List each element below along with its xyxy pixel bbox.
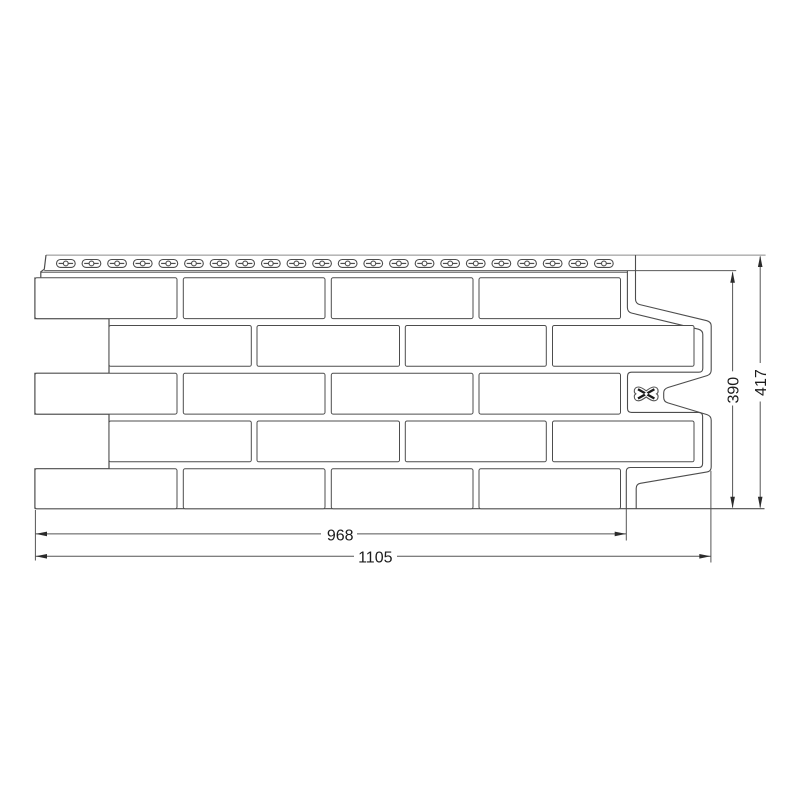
svg-text:968: 968 [327, 528, 354, 545]
svg-text:1105: 1105 [358, 550, 393, 567]
svg-text:417: 417 [753, 369, 770, 396]
svg-text:390: 390 [726, 377, 743, 404]
